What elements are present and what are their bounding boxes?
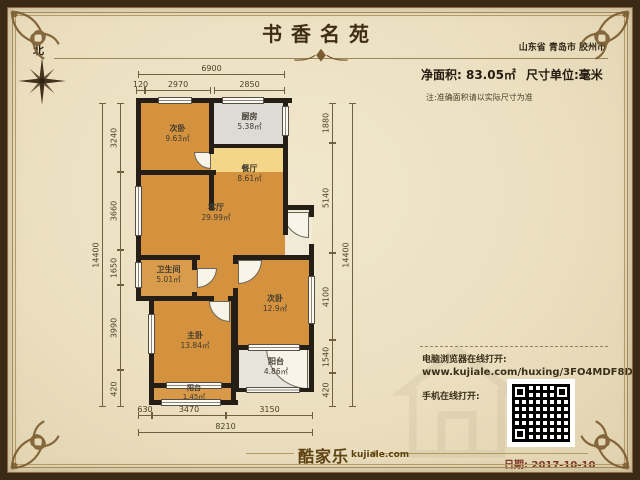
- room-label: 主卧13.84㎡: [155, 331, 235, 351]
- room-label: 次卧12.9㎡: [238, 294, 312, 314]
- window: [148, 314, 155, 354]
- wall: [235, 345, 239, 392]
- corner-flourish-icon: [574, 414, 632, 472]
- dim-right-total: 14400: [352, 103, 353, 407]
- unit-label: 尺寸单位:毫米: [526, 68, 603, 82]
- net-area-line: 净面积: 83.05㎡尺寸单位:毫米: [421, 66, 613, 83]
- wall: [309, 205, 314, 217]
- dim-bottom-seg: 3470: [152, 415, 226, 416]
- window: [246, 387, 300, 393]
- dim-right-seg: 5140: [332, 143, 333, 253]
- qr-code: [507, 379, 575, 447]
- dim-right-seg: 4100: [332, 253, 333, 340]
- wall: [136, 296, 214, 301]
- corner-flourish-icon: [574, 8, 632, 66]
- dim-left-seg: 3660: [120, 172, 121, 250]
- corner-flourish-icon: [8, 8, 66, 66]
- dim-left-seg: 420: [120, 370, 121, 407]
- room-label: 阳台4.86㎡: [241, 357, 311, 377]
- accuracy-note: 注:准确面积请以实际尺寸为准: [426, 92, 533, 103]
- dim-left-total: 14400: [102, 103, 103, 407]
- window: [222, 97, 264, 104]
- net-area-value: 净面积: 83.05㎡: [421, 68, 516, 82]
- wall: [192, 292, 197, 301]
- dim-left-seg: 3990: [120, 285, 121, 370]
- dim-top-seg: 2850: [214, 90, 285, 91]
- dim-top-total: 6900: [138, 74, 285, 75]
- dim-right-seg: 420: [332, 373, 333, 407]
- dim-bottom-seg: 3150: [226, 415, 313, 416]
- room-label: 餐厅8.61㎡: [211, 164, 288, 184]
- dim-left-seg: 1650: [120, 250, 121, 285]
- dim-right-seg: 1540: [332, 340, 333, 373]
- wall: [233, 255, 314, 260]
- qr-finder: [512, 426, 528, 442]
- room-label: 次卧9.63㎡: [141, 124, 214, 144]
- dim-top-seg: 120: [136, 90, 145, 91]
- window: [135, 186, 142, 236]
- brand-domain-text: kujiale.com: [351, 450, 409, 460]
- wall: [233, 255, 238, 264]
- wall: [136, 255, 200, 260]
- mobile-open-label: 手机在线打开:: [422, 389, 480, 402]
- window: [248, 344, 300, 351]
- dim-bottom-total: 8210: [138, 432, 313, 433]
- dim-bottom-seg: 630: [138, 415, 152, 416]
- title-ornament-icon: [292, 46, 350, 66]
- qr-finder: [512, 384, 528, 400]
- wall: [209, 144, 288, 148]
- room-label: 厨房5.38㎡: [211, 112, 288, 132]
- floorplan-poster: 书香名苑 山东省 青岛市 胶州市 净面积: 83.05㎡尺寸单位:毫米 注:准确…: [0, 0, 640, 480]
- wall: [136, 170, 216, 175]
- room-label: 阳台1.45㎡: [155, 384, 233, 402]
- dim-top-seg: 2970: [145, 90, 211, 91]
- window: [158, 97, 192, 104]
- desktop-open-label: 电脑浏览器在线打开:: [422, 352, 507, 365]
- share-divider: [420, 346, 608, 347]
- dim-right-seg: 1880: [332, 103, 333, 143]
- footer-ornament-right: [382, 453, 588, 454]
- room-label: 卫生间5.01㎡: [141, 265, 196, 285]
- share-url: www.kujiale.com/huxing/3FO4MDF8DUBI: [422, 367, 640, 378]
- footer-ornament-left: [246, 453, 294, 454]
- room-label: 客厅29.99㎡: [146, 203, 286, 223]
- dim-left-seg: 3240: [120, 103, 121, 172]
- qr-finder: [554, 384, 570, 400]
- brand-logo-text: 酷家乐: [298, 443, 349, 467]
- corner-flourish-icon: [8, 414, 66, 472]
